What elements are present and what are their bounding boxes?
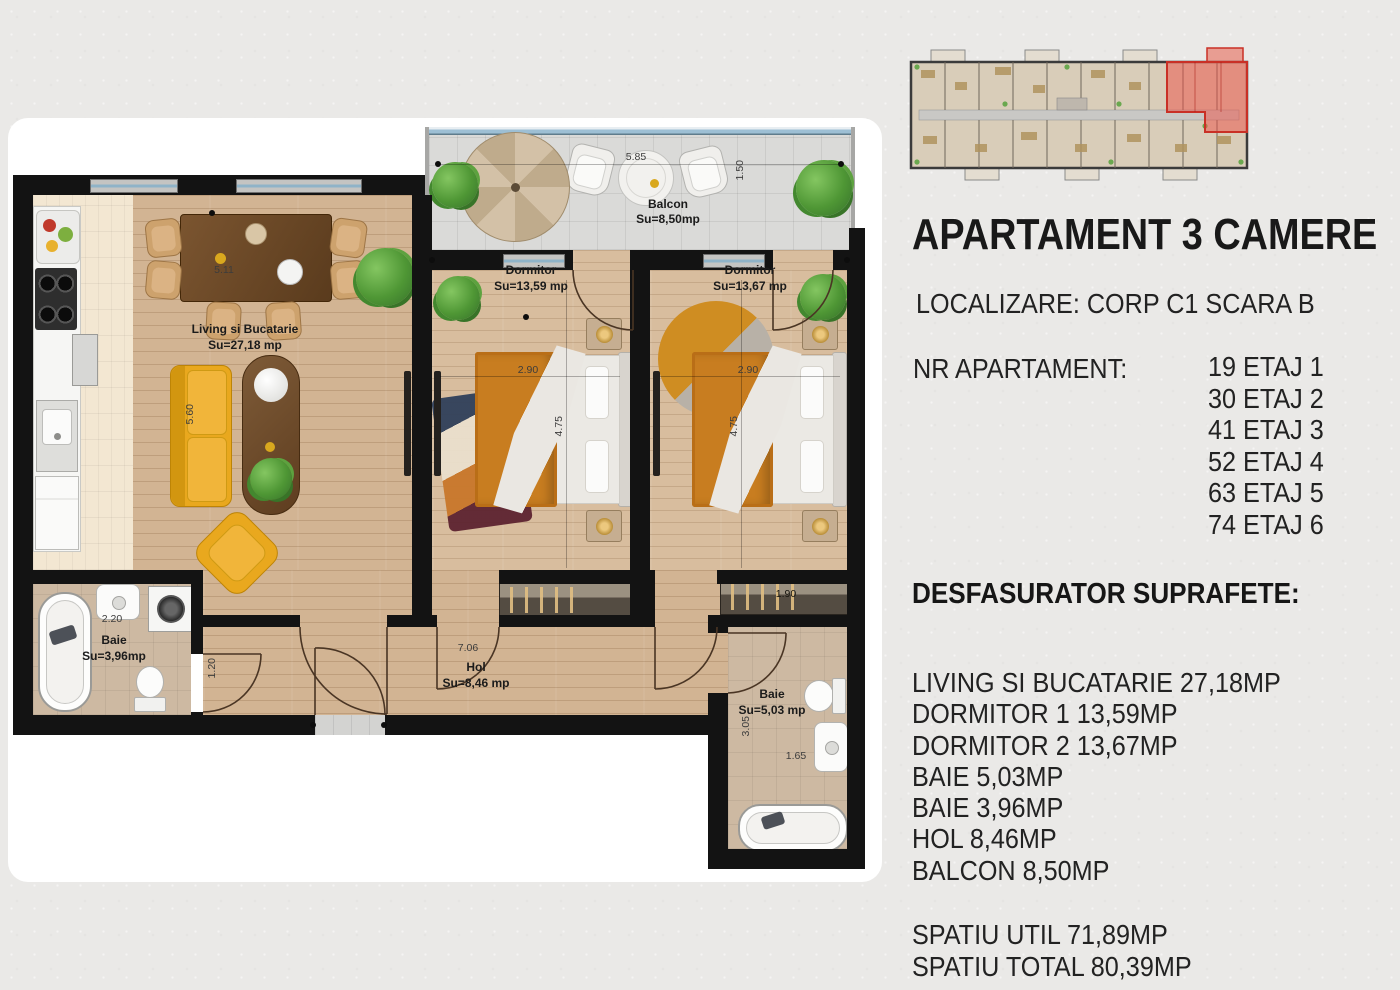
- page: { "title": "APARTAMENT 3 CAMERE", "locat…: [0, 0, 1400, 990]
- page-title: APARTAMENT 3 CAMERE: [912, 210, 1377, 260]
- dim-dormitor2-width: 2.90: [738, 364, 758, 376]
- dim-balcony-depth: 1.50: [734, 160, 746, 180]
- door-dormitor2: [655, 627, 717, 689]
- apartment-number-list: 19 ETAJ 1 30 ETAJ 2 41 ETAJ 3 52 ETAJ 4 …: [1208, 351, 1324, 540]
- dim-dormitor1-width: 2.90: [518, 364, 538, 376]
- dim-baie2-width: 1.65: [786, 750, 806, 762]
- surface-item: HOL 8,46MP: [912, 823, 1281, 854]
- door-living-hol: [300, 627, 387, 714]
- apartment-number-entry: 41 ETAJ 3: [1208, 414, 1324, 446]
- surfaces-list: LIVING SI BUCATARIE 27,18MP DORMITOR 1 1…: [912, 667, 1281, 886]
- building-overview-plan: [905, 40, 1253, 188]
- surface-item: DORMITOR 2 13,67MP: [912, 730, 1281, 761]
- room-label-hol: Hol: [466, 661, 485, 674]
- dim-baie1-width: 2.20: [102, 613, 122, 625]
- room-area-balcon: Su=8,50mp: [636, 213, 700, 226]
- room-area-hol: Su=8,46 mp: [442, 677, 509, 690]
- overview-highlight-balcony: [1207, 48, 1243, 62]
- room-label-baie2: Baie: [759, 688, 784, 701]
- apartment-number-entry: 52 ETAJ 4: [1208, 446, 1324, 478]
- dim-line: [660, 376, 840, 377]
- dim-living-width: 5.11: [214, 264, 234, 276]
- surface-total-total: SPATIU TOTAL 80,39MP: [912, 951, 1192, 983]
- dim-sofa-length: 5.60: [184, 404, 196, 424]
- dim-dormitor1-depth: 4.75: [553, 416, 565, 436]
- surface-item: LIVING SI BUCATARIE 27,18MP: [912, 667, 1281, 698]
- dim-line: [440, 376, 620, 377]
- dim-dot: [381, 722, 387, 728]
- surface-total-util: SPATIU UTIL 71,89MP: [912, 919, 1192, 951]
- room-area-dormitor1: Su=13,59 mp: [494, 280, 568, 293]
- apartment-number-label: NR APARTAMENT:: [913, 353, 1127, 385]
- room-area-baie1: Su=3,96mp: [82, 650, 146, 663]
- surface-item: BAIE 3,96MP: [912, 792, 1281, 823]
- dim-dot: [310, 722, 316, 728]
- surfaces-heading: DESFASURATOR SUPRAFETE:: [912, 578, 1300, 611]
- dim-dormitor2-depth: 4.75: [728, 416, 740, 436]
- room-label-baie1: Baie: [101, 634, 126, 647]
- room-area-dormitor2: Su=13,67 mp: [713, 280, 787, 293]
- apartment-number-entry: 30 ETAJ 2: [1208, 383, 1324, 415]
- dim-dot: [844, 257, 850, 263]
- door-swing-layer: [8, 118, 882, 882]
- room-label-living: Living si Bucatarie: [192, 323, 299, 336]
- apartment-number-entry: 19 ETAJ 1: [1208, 351, 1324, 383]
- dim-line: [438, 164, 843, 165]
- surface-totals: SPATIU UTIL 71,89MP SPATIU TOTAL 80,39MP: [912, 919, 1192, 983]
- floorplan-card: Balcon Su=8,50mp Living si Bucatarie Su=…: [8, 118, 882, 882]
- dim-wardrobe-width: 1.90: [776, 588, 796, 600]
- apartment-number-entry: 74 ETAJ 6: [1208, 509, 1324, 541]
- surface-item: BALCON 8,50MP: [912, 855, 1281, 886]
- dim-dot: [838, 161, 844, 167]
- room-label-dormitor1: Dormitor: [506, 264, 557, 277]
- dim-dot: [523, 314, 529, 320]
- room-area-living: Su=27,18 mp: [208, 339, 282, 352]
- location-line: LOCALIZARE: CORP C1 SCARA B: [916, 288, 1315, 320]
- dim-dot: [435, 161, 441, 167]
- dim-dot: [209, 210, 215, 216]
- overview-stair-core: [1057, 98, 1087, 110]
- dim-baie2-depth: 3.05: [740, 716, 752, 736]
- room-label-dormitor2: Dormitor: [725, 264, 776, 277]
- dim-balcony-width: 5.85: [626, 151, 646, 163]
- dim-line: [741, 280, 742, 568]
- room-label-balcon: Balcon: [648, 198, 688, 211]
- dim-dot: [429, 257, 435, 263]
- surface-item: DORMITOR 1 13,59MP: [912, 698, 1281, 729]
- dim-baie1-door: 1.20: [206, 658, 218, 678]
- surface-item: BAIE 5,03MP: [912, 761, 1281, 792]
- door-baie2: [728, 633, 786, 693]
- door-dormitor1-balcony: [573, 270, 633, 330]
- dim-hol-width: 7.06: [458, 642, 478, 654]
- apartment-number-entry: 63 ETAJ 5: [1208, 477, 1324, 509]
- dim-line: [566, 280, 567, 568]
